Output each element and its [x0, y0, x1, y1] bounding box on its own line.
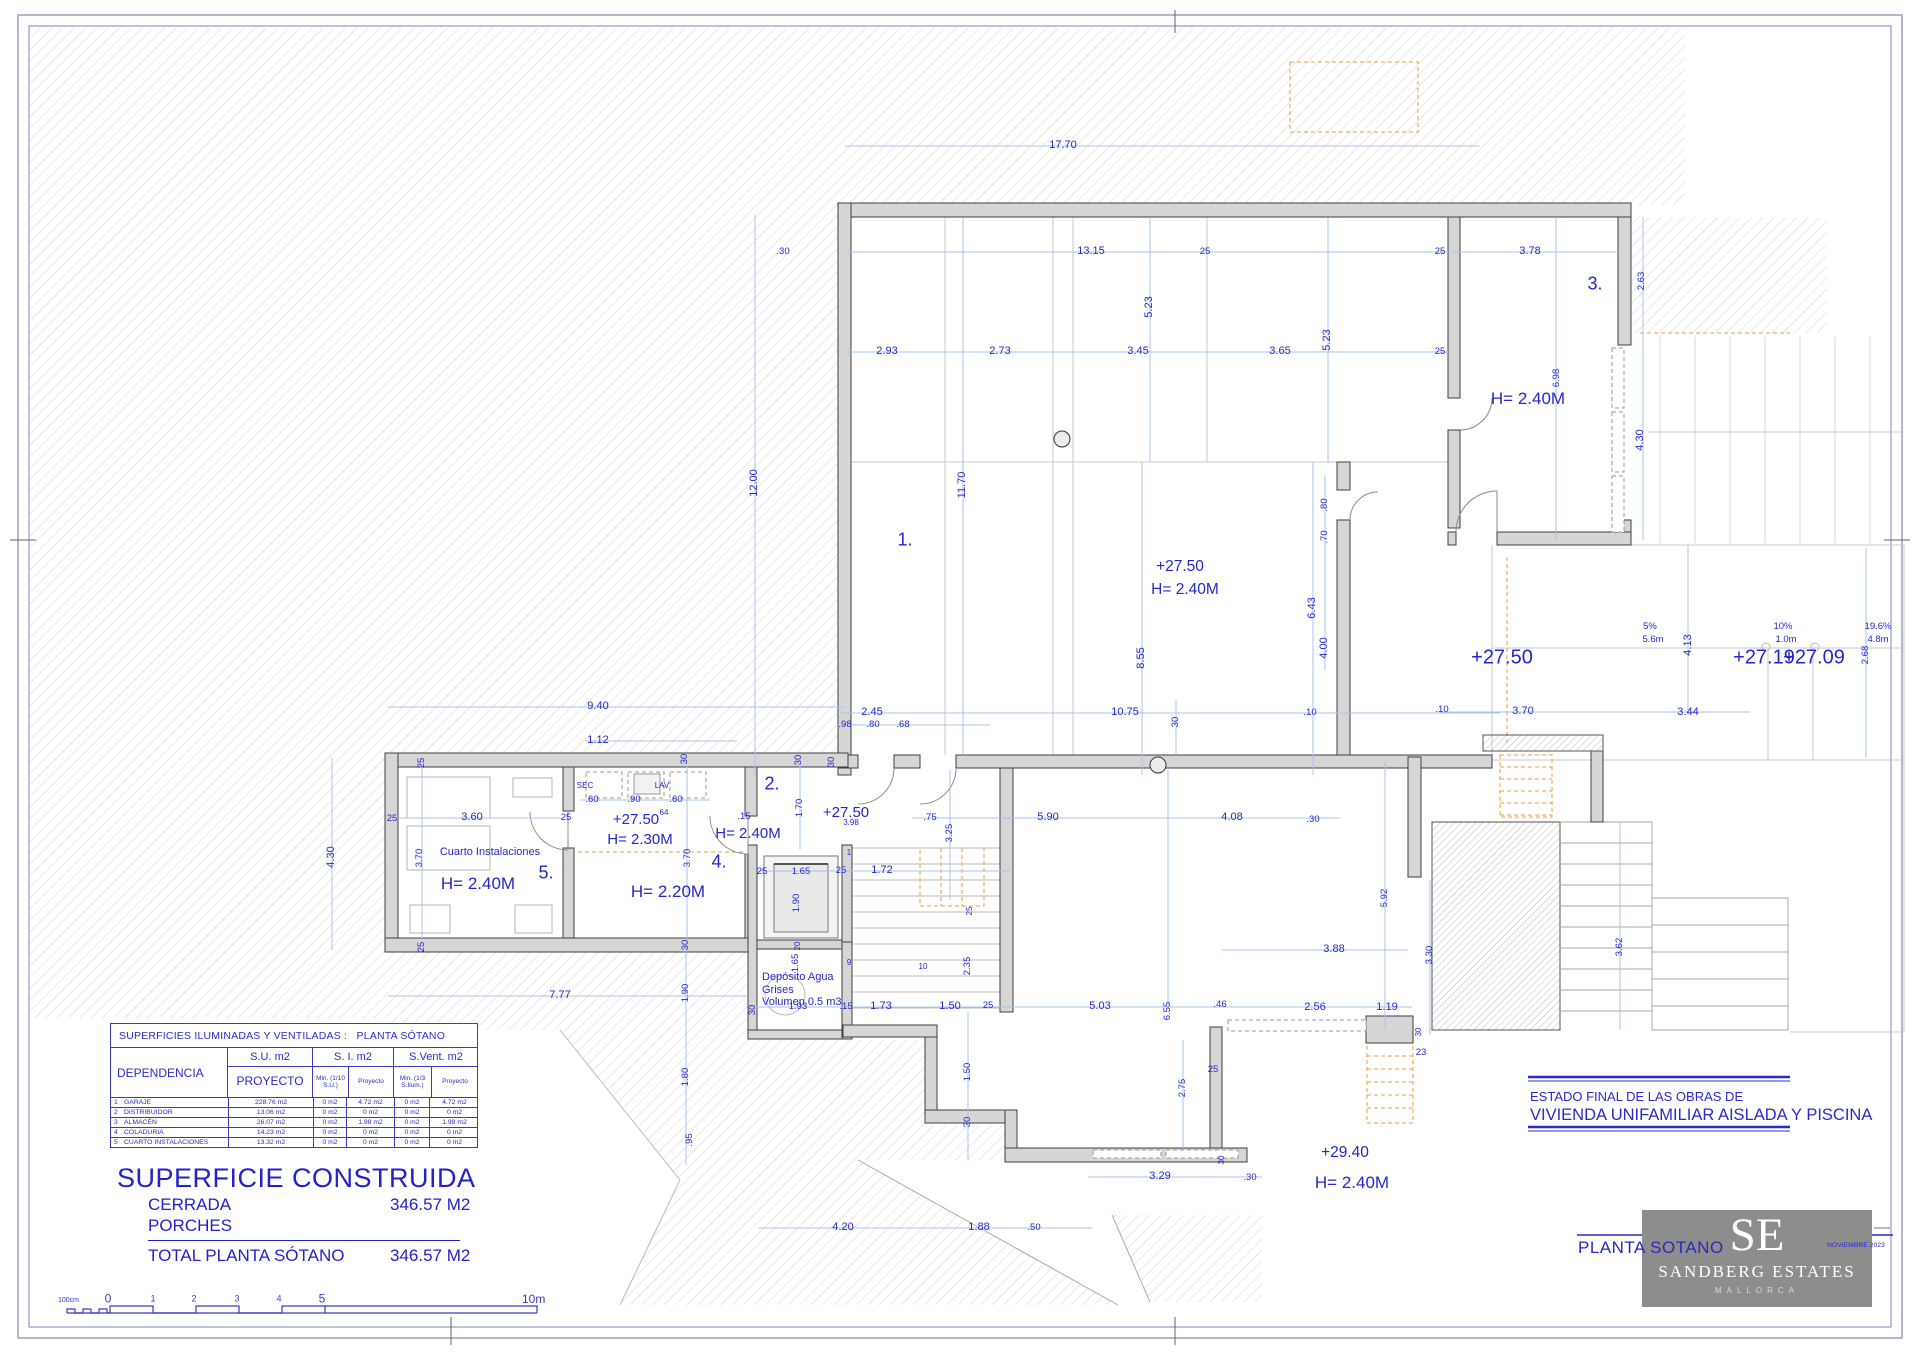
- scale-tick-label: 1: [150, 1294, 155, 1303]
- summary-total-label: TOTAL PLANTA SÓTANO: [148, 1246, 345, 1266]
- dim-label: 5.03: [1089, 1001, 1110, 1013]
- dim-label: 19.6%: [1865, 622, 1892, 632]
- summary-total-value: 346.57 M2: [390, 1246, 470, 1266]
- areas-table-row: 3ALMACÉN26.07 m20 m21.98 m20 m21.98 m2: [111, 1117, 477, 1127]
- col-svent: S.Vent. m2 Min. (1/3 S.Ilum.) Proyecto: [394, 1048, 478, 1097]
- dim-label: 25: [1435, 247, 1446, 257]
- level-height-label: H= 2.40M: [1315, 1174, 1389, 1192]
- dim-label: .70: [1320, 530, 1330, 543]
- dim-label: .10: [1303, 708, 1316, 718]
- col-su: S.U. m2 PROYECTO: [228, 1048, 313, 1097]
- dim-label: 64: [660, 809, 669, 817]
- summary-cerrada-value: 346.57 M2: [390, 1195, 470, 1215]
- dim-label: 25: [1208, 1065, 1219, 1075]
- dim-label: 25: [983, 1001, 994, 1011]
- dim-label: 25: [1200, 247, 1211, 257]
- dim-label: 25: [387, 814, 398, 824]
- col-si: S. I. m2 Min. (1/10 S.U.) Proyecto: [313, 1048, 394, 1097]
- dim-label: 1.12: [587, 735, 608, 747]
- dim-label: 25: [966, 907, 974, 916]
- dim-label: 4.30: [326, 846, 338, 867]
- areas-table-row: 2DISTRIBUIDOR13.06 m20 m20 m20 m20 m2: [111, 1107, 477, 1117]
- scale-tick-label: 5: [319, 1293, 326, 1306]
- dim-label: 3.62: [1615, 938, 1625, 957]
- dim-label: 10%: [1773, 622, 1792, 632]
- dim-label: 10.75: [1111, 707, 1139, 719]
- level-height-label: +27.50: [1156, 559, 1204, 575]
- dim-label: .98: [838, 720, 851, 730]
- dim-label: 3.30: [1425, 946, 1435, 965]
- summary-divider: [148, 1240, 460, 1241]
- dim-label: 2.63: [1637, 272, 1647, 291]
- dim-label: 25: [836, 866, 847, 876]
- dim-label: 6.43: [1307, 597, 1319, 618]
- dim-label: 5.: [538, 864, 553, 883]
- dim-label: 7.77: [549, 990, 570, 1002]
- dim-label: .80: [1320, 498, 1330, 511]
- dim-label: 1.93: [789, 1002, 808, 1012]
- stair-mass: [1432, 822, 1560, 1030]
- dim-label: 3.29: [1149, 1171, 1170, 1183]
- drawing-sheet: 17.7013.15.30252.932.733.453.655.235.231…: [0, 0, 1920, 1355]
- dim-label: 1.0m: [1775, 635, 1796, 645]
- dim-label: 4.8m: [1867, 635, 1888, 645]
- dim-label: 13.15: [1077, 246, 1105, 258]
- scale-end-label: 10m: [522, 1292, 545, 1306]
- dim-label: 3.70: [683, 849, 693, 868]
- dim-label: 1.73: [870, 1001, 891, 1013]
- dim-label: 25: [1435, 347, 1446, 357]
- dim-label: .15: [839, 1002, 852, 1012]
- dim-label: .80: [866, 720, 879, 730]
- dim-label: 30: [1171, 717, 1181, 728]
- dim-label: 6.55: [1163, 1002, 1173, 1021]
- dim-label: 9.40: [587, 701, 608, 713]
- project-status-line: ESTADO FINAL DE LAS OBRAS DE: [1530, 1089, 1743, 1104]
- logo-location: MALLORCA: [1642, 1286, 1872, 1295]
- dim-label: 2.75: [1178, 1079, 1188, 1098]
- dim-label: 4.08: [1221, 812, 1242, 824]
- dim-label: 30: [748, 1005, 758, 1016]
- dim-label: 30: [1218, 1156, 1226, 1165]
- scale-bar: [67, 1306, 537, 1313]
- plan-name: PLANTA SOTANO: [1578, 1238, 1724, 1258]
- areas-table-body: 1GARAJE228.76 m20 m24.72 m20 m24.72 m22D…: [111, 1097, 477, 1147]
- dim-label: .60: [669, 795, 682, 805]
- dim-label: 3.45: [1127, 346, 1148, 358]
- level-height-label: +29.40: [1321, 1145, 1369, 1161]
- dim-label: .95: [685, 1133, 695, 1146]
- dim-label: 30: [963, 1117, 973, 1128]
- dim-label: 10: [919, 963, 928, 971]
- areas-table-title: SUPERFICIES ILUMINADAS Y VENTILADAS : PL…: [111, 1024, 477, 1048]
- dim-label: Cuarto Instalaciones: [440, 847, 540, 859]
- dim-label: 11.70: [957, 472, 969, 499]
- summary-title: SUPERFICIE CONSTRUIDA: [117, 1163, 476, 1194]
- dim-label: 25: [757, 867, 768, 877]
- dim-label: 2.45: [861, 707, 882, 719]
- dim-label: 5.92: [1380, 889, 1390, 908]
- dim-label: 3.: [1587, 275, 1602, 294]
- level-height-label: +27.50: [1471, 648, 1533, 669]
- dim-label: 23: [1416, 1048, 1427, 1058]
- dim-label: 2.56: [1304, 1002, 1325, 1014]
- col-dependencia: DEPENDENCIA: [111, 1048, 228, 1097]
- areas-table-row: 1GARAJE228.76 m20 m24.72 m20 m24.72 m2: [111, 1097, 477, 1107]
- dim-label: 1.65: [792, 867, 811, 877]
- dim-label: .15: [737, 812, 750, 822]
- plan-date: NOVIEMBRE 2023: [1827, 1242, 1885, 1249]
- level-height-label: H= 2.40M: [715, 826, 780, 842]
- dim-label: 5.23: [1144, 296, 1156, 317]
- level-height-label: +27.09: [1783, 648, 1845, 669]
- summary-cerrada-label: CERRADA: [148, 1195, 231, 1215]
- dim-label: 3.60: [461, 812, 482, 824]
- dim-label: 2.93: [876, 346, 897, 358]
- dim-label: 5.6m: [1642, 635, 1663, 645]
- dim-label: 4.: [711, 853, 726, 872]
- scale-tick-label: 4: [276, 1294, 281, 1303]
- dim-label: 1.70: [795, 799, 805, 818]
- dim-label: 3.78: [1519, 246, 1540, 258]
- dim-label: 25: [561, 813, 572, 823]
- dim-label: .30: [1243, 1173, 1256, 1183]
- dim-label: .30: [776, 247, 789, 257]
- company-logo: SE SANDBERG ESTATES MALLORCA: [1642, 1210, 1872, 1307]
- dim-label: 30: [681, 940, 691, 951]
- dim-label: 2.: [764, 775, 779, 794]
- dim-label: 3.25: [945, 824, 955, 843]
- dim-label: 2.68: [1861, 646, 1871, 665]
- dim-label: 1.90: [792, 894, 802, 913]
- dim-label: .30: [1306, 815, 1319, 825]
- dim-label: 30: [1415, 1028, 1423, 1037]
- areas-table-row: 4COLADURIA14.23 m20 m20 m20 m20 m2: [111, 1127, 477, 1137]
- dim-label: 17.70: [1049, 140, 1077, 152]
- dim-label: 30: [827, 757, 837, 768]
- level-height-label: H= 2.40M: [441, 875, 515, 893]
- dim-label: .10: [1435, 705, 1448, 715]
- level-height-label: H= 2.40M: [1151, 582, 1219, 598]
- dim-label: 3.70: [1512, 706, 1533, 718]
- floor-plan-drawing: [0, 0, 1920, 1355]
- dim-label: 1.: [897, 531, 912, 550]
- logo-name: SANDBERG ESTATES: [1642, 1262, 1872, 1282]
- column: [1054, 431, 1070, 447]
- retaining-wall: [1483, 735, 1603, 751]
- dim-label: 5%: [1643, 622, 1657, 632]
- dim-label: 3.65: [1269, 346, 1290, 358]
- dim-label: 1.72: [871, 865, 892, 877]
- dim-label: 9: [847, 959, 851, 967]
- dim-label: 3.44: [1677, 707, 1698, 719]
- dim-label: .75: [923, 813, 936, 823]
- dim-label: 20: [794, 942, 802, 951]
- dim-label: 8.55: [1136, 647, 1148, 668]
- dim-label: 3.70: [415, 849, 425, 868]
- dim-label: 5.90: [1037, 812, 1058, 824]
- dim-label: 3.88: [1323, 944, 1344, 956]
- dim-label: 2.35: [963, 957, 973, 976]
- dim-label: SEC: [577, 782, 593, 790]
- areas-table-row: 5CUARTO INSTALACIONES13.32 m20 m20 m20 m…: [111, 1137, 477, 1147]
- pergola-lines: [1660, 337, 1870, 543]
- dim-label: 1.65: [791, 954, 801, 973]
- summary-porches-label: PORCHES: [148, 1216, 232, 1236]
- dim-label: 2.73: [989, 346, 1010, 358]
- dim-label: 1.80: [681, 1068, 691, 1087]
- dim-label: 4.30: [1635, 429, 1647, 450]
- dim-label: .90: [627, 795, 640, 805]
- dim-label: 4.00: [1319, 637, 1331, 658]
- dim-label: 4.20: [832, 1222, 853, 1234]
- dim-label: 30: [794, 755, 804, 766]
- level-height-label: H= 2.30M: [607, 832, 672, 848]
- level-height-label: H= 2.20M: [631, 883, 705, 901]
- areas-table: SUPERFICIES ILUMINADAS Y VENTILADAS : PL…: [110, 1023, 478, 1148]
- dim-label: 1: [847, 849, 851, 857]
- dim-label: .50: [1027, 1223, 1040, 1233]
- dim-label: .46: [1213, 1000, 1226, 1010]
- dim-label: LAV: [655, 782, 670, 790]
- dim-label: 1.50: [939, 1001, 960, 1013]
- dim-label: 1.90: [681, 984, 691, 1003]
- scale-tick-label: 3: [234, 1294, 239, 1303]
- dim-label: 12.00: [749, 469, 761, 497]
- dim-label: 1.19: [1376, 1002, 1397, 1014]
- scale-tick-label: 0: [105, 1293, 112, 1306]
- project-title: VIVIENDA UNIFAMILIAR AISLADA Y PISCINA: [1530, 1106, 1872, 1125]
- dim-label: 3.98: [843, 819, 859, 827]
- dim-label: 4.13: [1683, 634, 1695, 655]
- column: [1150, 757, 1166, 773]
- scale-unit-label: 100cm: [58, 1297, 79, 1304]
- dim-label: 30: [680, 754, 690, 765]
- dim-label: 6.98: [1552, 369, 1562, 388]
- dim-label: 5.23: [1322, 329, 1334, 350]
- scale-tick-label: 2: [191, 1294, 196, 1303]
- dim-label: .68: [896, 720, 909, 730]
- dim-label: 1.50: [963, 1063, 973, 1082]
- areas-table-header: DEPENDENCIA S.U. m2 PROYECTO S. I. m2 Mi…: [111, 1048, 477, 1097]
- dim-label: 25: [417, 758, 427, 769]
- dim-label: 25: [417, 942, 427, 953]
- dim-label: .60: [585, 795, 598, 805]
- level-height-label: +27.50: [613, 812, 659, 828]
- dim-label: 1.88: [968, 1222, 989, 1234]
- level-height-label: H= 2.40M: [1491, 390, 1565, 408]
